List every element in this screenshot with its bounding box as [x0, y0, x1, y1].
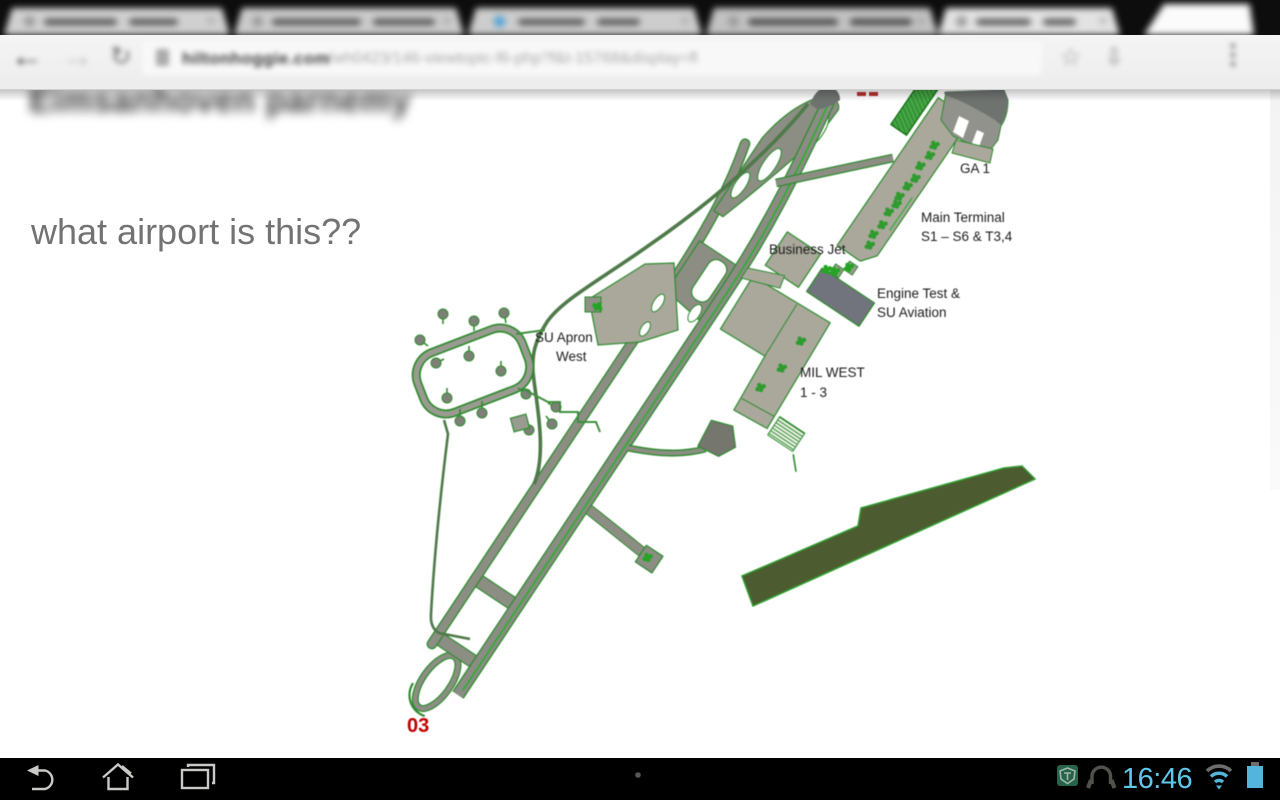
svg-text:West: West: [556, 349, 587, 364]
svg-text:GA 1: GA 1: [960, 161, 990, 176]
svg-text:1 - 3: 1 - 3: [800, 385, 827, 400]
svg-text:SU Aviation: SU Aviation: [877, 305, 947, 320]
svg-text:Main Terminal: Main Terminal: [921, 210, 1005, 225]
svg-text:Engine Test &: Engine Test &: [877, 286, 960, 301]
svg-text:03: 03: [407, 715, 429, 737]
svg-text:SU Apron: SU Apron: [535, 330, 593, 345]
svg-text:MIL WEST: MIL WEST: [800, 365, 865, 380]
svg-text:Business Jet: Business Jet: [769, 242, 846, 257]
svg-text:S1 – S6 & T3,4: S1 – S6 & T3,4: [921, 229, 1013, 244]
